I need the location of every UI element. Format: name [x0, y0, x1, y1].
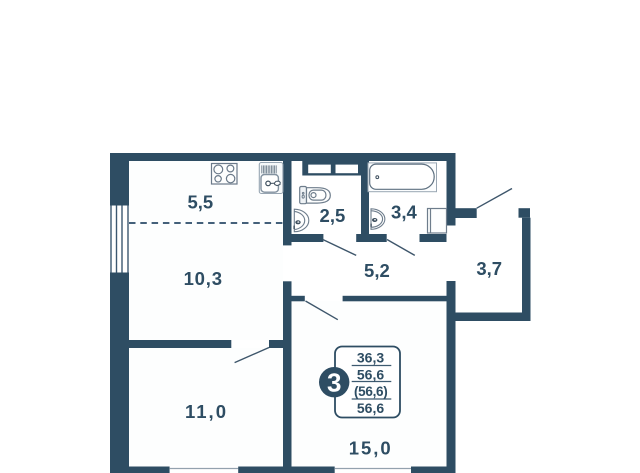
svg-text:5,2: 5,2 [364, 260, 390, 281]
svg-text:2,5: 2,5 [320, 205, 346, 226]
svg-text:3,4: 3,4 [391, 202, 417, 223]
svg-text:36,3: 36,3 [357, 349, 384, 365]
svg-text:5,5: 5,5 [187, 192, 213, 213]
svg-text:3,7: 3,7 [476, 258, 502, 279]
svg-text:15,0: 15,0 [349, 437, 393, 458]
svg-text:(56,6): (56,6) [354, 384, 387, 399]
svg-text:10,3: 10,3 [184, 268, 223, 289]
svg-text:56,6: 56,6 [357, 400, 384, 416]
svg-text:11,0: 11,0 [185, 401, 228, 422]
svg-text:3: 3 [327, 368, 341, 398]
svg-text:56,6: 56,6 [357, 367, 384, 383]
